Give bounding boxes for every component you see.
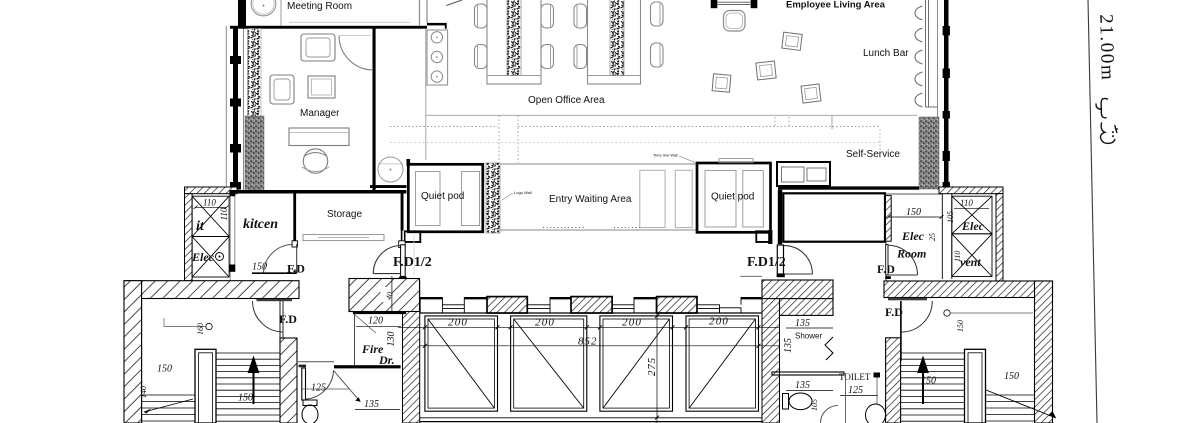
- svg-text:135: 135: [795, 380, 810, 391]
- svg-text:vent: vent: [960, 255, 981, 269]
- svg-text:135: 135: [783, 338, 794, 353]
- svg-text:Elec: Elec: [191, 250, 215, 264]
- svg-text:200: 200: [622, 317, 642, 329]
- svg-text:Self-Service: Self-Service: [846, 149, 900, 160]
- svg-text:150: 150: [1004, 371, 1019, 382]
- svg-text:150: 150: [906, 207, 921, 218]
- svg-text:110: 110: [219, 207, 229, 220]
- svg-text:110: 110: [203, 198, 216, 208]
- svg-text:150: 150: [238, 393, 253, 404]
- svg-text:Quiet pod: Quiet pod: [711, 192, 754, 203]
- svg-text:105: 105: [946, 211, 955, 223]
- svg-text:135: 135: [795, 318, 810, 329]
- svg-text:TOILET: TOILET: [839, 372, 871, 382]
- svg-text:150: 150: [157, 364, 172, 375]
- svg-text:140: 140: [139, 386, 148, 398]
- svg-text:135: 135: [364, 399, 379, 410]
- svg-text:200: 200: [535, 317, 555, 329]
- svg-text:Dr.: Dr.: [378, 353, 395, 367]
- svg-text:275: 275: [646, 357, 658, 376]
- svg-text:Logo Wall: Logo Wall: [514, 190, 532, 195]
- svg-text:Employee Living Area: Employee Living Area: [786, 0, 886, 11]
- svg-text:120: 120: [368, 316, 383, 327]
- svg-text:125: 125: [848, 385, 863, 396]
- svg-text:F.D1/2: F.D1/2: [393, 255, 432, 270]
- svg-text:Shower: Shower: [795, 332, 822, 341]
- svg-text:Room: Room: [896, 247, 926, 261]
- svg-text:F.D1/2: F.D1/2: [747, 255, 786, 270]
- svg-text:F.D: F.D: [279, 312, 297, 326]
- svg-text:it: it: [196, 219, 205, 234]
- svg-text:Storage: Storage: [327, 209, 362, 220]
- svg-text:852: 852: [578, 336, 598, 348]
- svg-text:110: 110: [960, 198, 973, 208]
- svg-text:Quiet pod: Quiet pod: [421, 191, 464, 202]
- svg-text:25: 25: [928, 233, 937, 241]
- svg-text:160: 160: [196, 323, 205, 335]
- svg-text:Manager: Manager: [300, 108, 340, 119]
- svg-text:Elec: Elec: [901, 229, 925, 243]
- svg-text:kitcen: kitcen: [243, 217, 278, 232]
- svg-text:130: 130: [386, 332, 397, 347]
- svg-text:150: 150: [252, 262, 267, 273]
- svg-text:200: 200: [448, 317, 468, 329]
- svg-text:Elec: Elec: [961, 219, 985, 233]
- svg-text:Meeting Room: Meeting Room: [287, 1, 352, 12]
- svg-text:150: 150: [956, 320, 965, 332]
- svg-text:Open Office Area: Open Office Area: [528, 95, 605, 106]
- svg-text:Time line Wall: Time line Wall: [653, 153, 678, 158]
- svg-text:Entry Waiting Area: Entry Waiting Area: [549, 194, 632, 205]
- svg-text:21.00m: 21.00m: [1095, 14, 1118, 82]
- svg-text:F.D: F.D: [287, 262, 305, 276]
- svg-text:Lunch Bar: Lunch Bar: [863, 48, 909, 59]
- svg-text:150: 150: [921, 376, 936, 387]
- svg-text:200: 200: [709, 316, 729, 328]
